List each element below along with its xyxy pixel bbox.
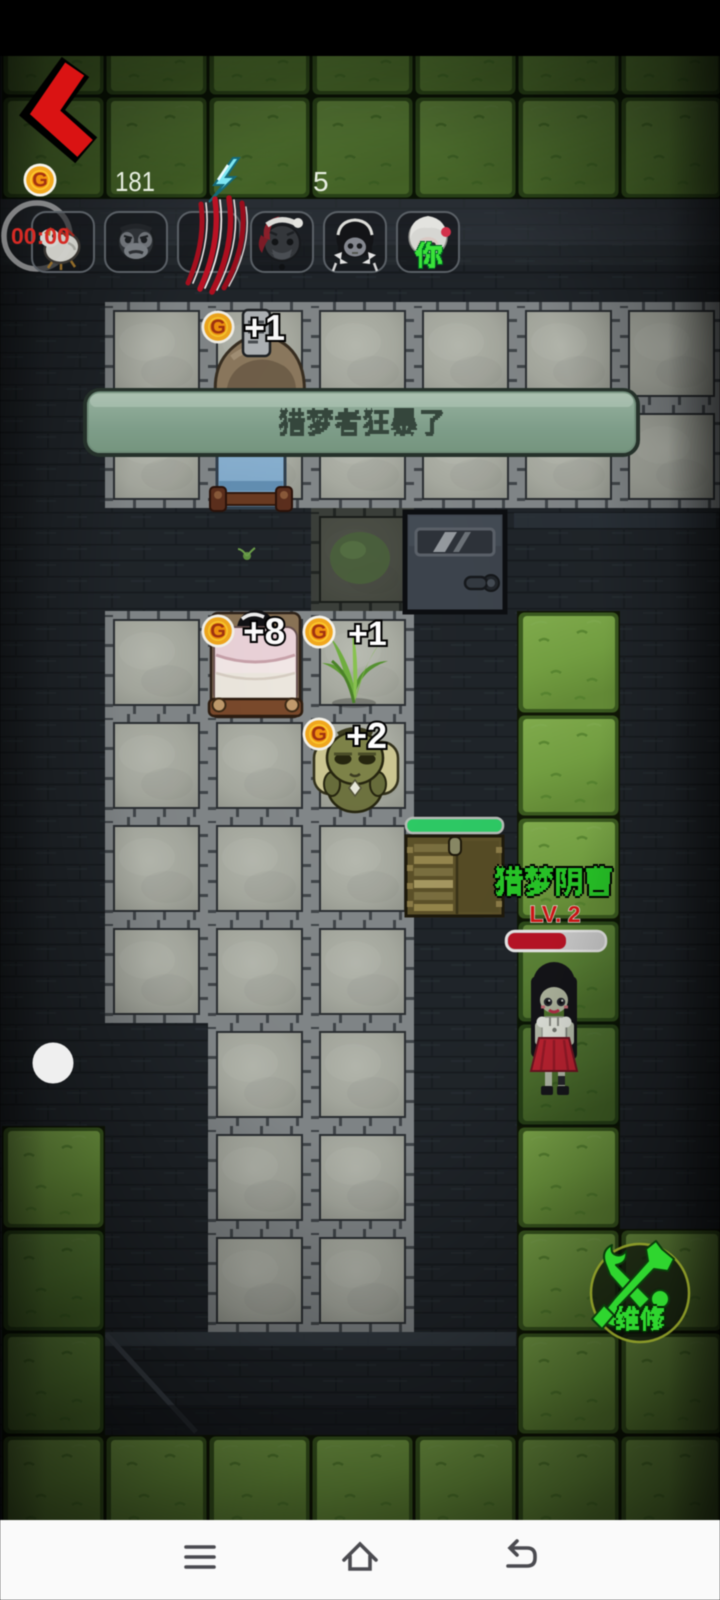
svg-text:181: 181 (115, 166, 155, 197)
svg-text:5: 5 (313, 166, 329, 197)
svg-text:00:00: 00:00 (11, 223, 70, 249)
